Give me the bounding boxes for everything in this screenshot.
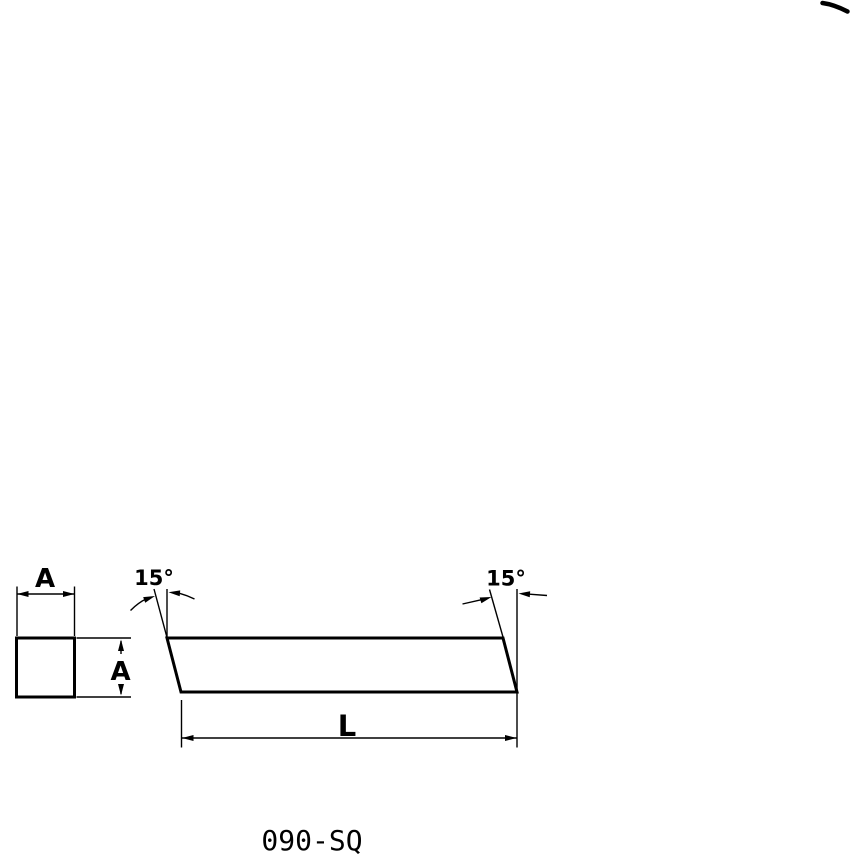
dim-width-arrow-left-icon [17, 591, 29, 597]
dim-height-arrow-up-icon [118, 640, 124, 652]
angle-left-arc-tail-left [131, 599, 147, 611]
angle-right-arrow-right-icon [518, 591, 530, 598]
angle-right-slant-extension-line [490, 590, 504, 638]
part-number-label: 090-SQ [261, 824, 362, 854]
angle-left-slant-extension-line [154, 589, 167, 638]
technical-drawing-canvas: A A 15° 15° L 090-SQ [0, 0, 854, 854]
square-end-view [17, 638, 75, 697]
angle-right-arrow-tail-left [463, 600, 482, 604]
dim-width-arrow-right-icon [63, 591, 75, 597]
blank-side-view [167, 638, 517, 692]
angle-right-label: 15° [486, 567, 526, 591]
angle-left-label: 15° [134, 566, 174, 590]
angle-left-arc-tail-right [180, 593, 195, 599]
angle-right-arrow-tail-right [530, 594, 548, 595]
angle-left-arrow-right-icon [168, 589, 180, 596]
angle-right-arrow-left-icon [480, 594, 493, 603]
drawing-svg: A A 15° 15° L 090-SQ [0, 0, 854, 854]
dim-length-label: L [338, 709, 356, 743]
angle-left-arrow-left-icon [143, 593, 156, 603]
dim-length-arrow-right-icon [505, 735, 517, 741]
dim-height-label: A [110, 657, 130, 687]
cropped-curve-fragment [823, 3, 848, 12]
dim-length-arrow-left-icon [182, 735, 194, 741]
dim-width-label: A [35, 564, 55, 594]
